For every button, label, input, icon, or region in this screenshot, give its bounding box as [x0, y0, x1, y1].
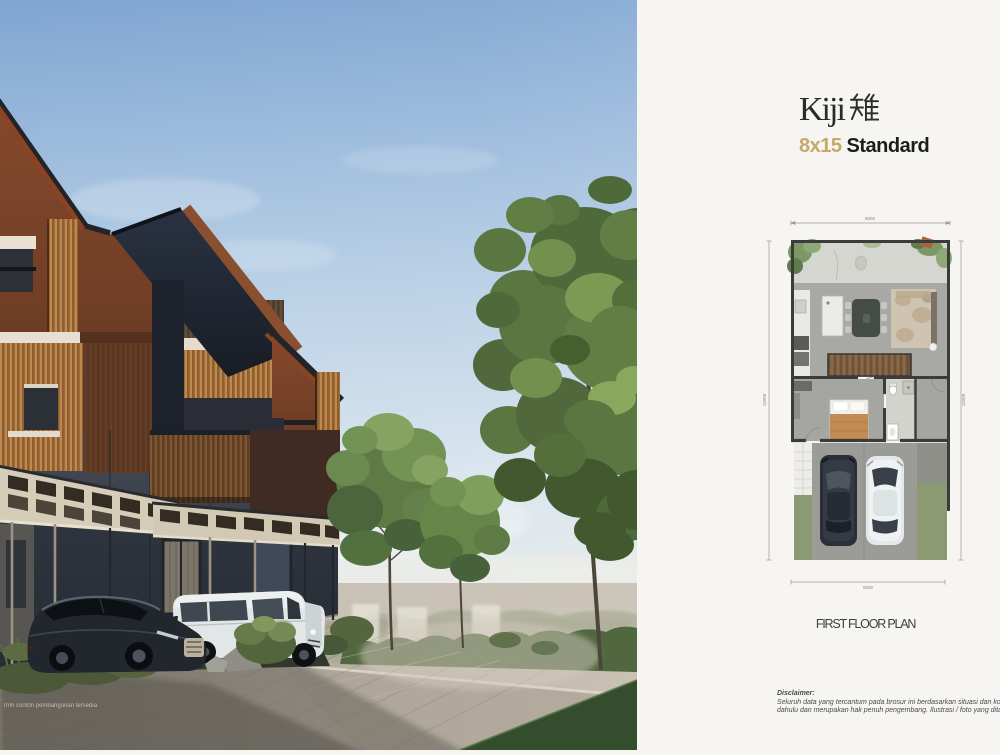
svg-text:8000: 8000 [865, 216, 876, 221]
svg-text:15000: 15000 [961, 393, 966, 406]
svg-text:8000: 8000 [863, 585, 874, 590]
svg-text:rmh contoh pembangunan tersedi: rmh contoh pembangunan tersedia [4, 703, 98, 709]
svg-text:15000: 15000 [762, 393, 767, 406]
